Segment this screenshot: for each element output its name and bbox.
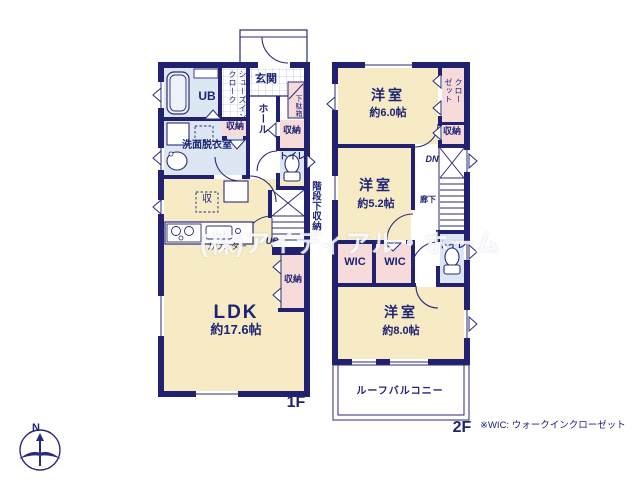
ldk-size-label: 約17.6帖 bbox=[186, 323, 286, 337]
corridor-label: 廊下 bbox=[414, 196, 442, 204]
genkan-label: 玄関 bbox=[246, 74, 286, 86]
bath-counter bbox=[194, 69, 218, 78]
storage-mark-label: 収 bbox=[196, 195, 218, 206]
bedroom-8-name-label: 洋室 bbox=[361, 305, 441, 320]
company-watermark: (株)アイディアル・ホーム bbox=[200, 224, 475, 260]
toilet-1f-label: トイレ bbox=[279, 152, 305, 161]
bedroom-5-size-label: 約5.2帖 bbox=[336, 199, 416, 211]
washroom-label: 洗面脱衣室 bbox=[166, 141, 248, 152]
closet-label: クローゼット bbox=[443, 78, 463, 105]
hall-label: ホール bbox=[253, 103, 267, 145]
compass-north-label: N bbox=[28, 423, 44, 435]
shoes-in-cloak-label: シューズインクローク bbox=[225, 70, 247, 122]
floorplan-canvas: 玄関 シューズインクローク UB 下駄箱 ホール 収納 収納 洗面脱衣室 トイレ… bbox=[0, 0, 640, 480]
unit-bath-label: UB bbox=[192, 90, 222, 103]
bedroom-6-size-label: 約6.0帖 bbox=[348, 108, 428, 120]
wic-footnote: ※WIC: ウォークインクローゼット bbox=[480, 421, 626, 431]
storage-ldk-label: 収納 bbox=[280, 275, 306, 284]
floor2-label: 2F bbox=[446, 420, 478, 437]
storage-2f-label: 収納 bbox=[439, 127, 465, 136]
bedroom-6-name-label: 洋室 bbox=[348, 88, 428, 103]
roof-balcony-label: ルーフバルコニー bbox=[340, 387, 460, 398]
floor1-label: 1F bbox=[280, 395, 312, 412]
bathtub-icon bbox=[167, 72, 189, 114]
wash-basin-icon bbox=[167, 152, 187, 170]
compass-icon bbox=[19, 430, 61, 470]
bedroom-5-name-label: 洋室 bbox=[336, 178, 416, 193]
shoe-cabinet-label: 下駄箱 bbox=[290, 95, 302, 119]
bedroom-8-size-label: 約8.0帖 bbox=[361, 326, 441, 338]
refrigerator-space bbox=[224, 181, 248, 202]
ldk-name-label: LDK bbox=[196, 303, 276, 323]
storage-hall-label: 収納 bbox=[279, 126, 305, 135]
storage-entrance-label: 収納 bbox=[222, 122, 248, 131]
stairs-down-label: DN bbox=[421, 155, 443, 164]
